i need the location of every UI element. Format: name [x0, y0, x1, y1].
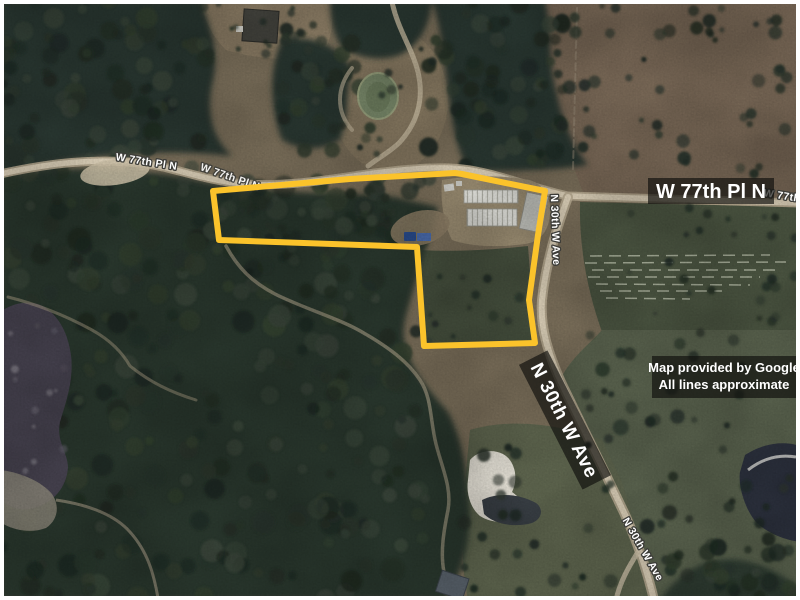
- attribution-line2: All lines approximate: [659, 377, 790, 392]
- grain-overlay: [0, 0, 800, 600]
- satellite-map: W 77th Pl N W 77th Pl N W 77th Pl N N 30…: [0, 0, 800, 600]
- satellite-map-image: W 77th Pl N W 77th Pl N W 77th Pl N N 30…: [0, 0, 800, 600]
- band-w-77th: W 77th Pl N: [648, 178, 774, 204]
- attribution-band: Map provided by Google All lines approxi…: [648, 356, 800, 398]
- band-w-77th-text: W 77th Pl N: [656, 181, 766, 203]
- road-label-n30-vertical: N 30th W Ave: [548, 194, 562, 266]
- attribution-line1: Map provided by Google: [648, 360, 800, 375]
